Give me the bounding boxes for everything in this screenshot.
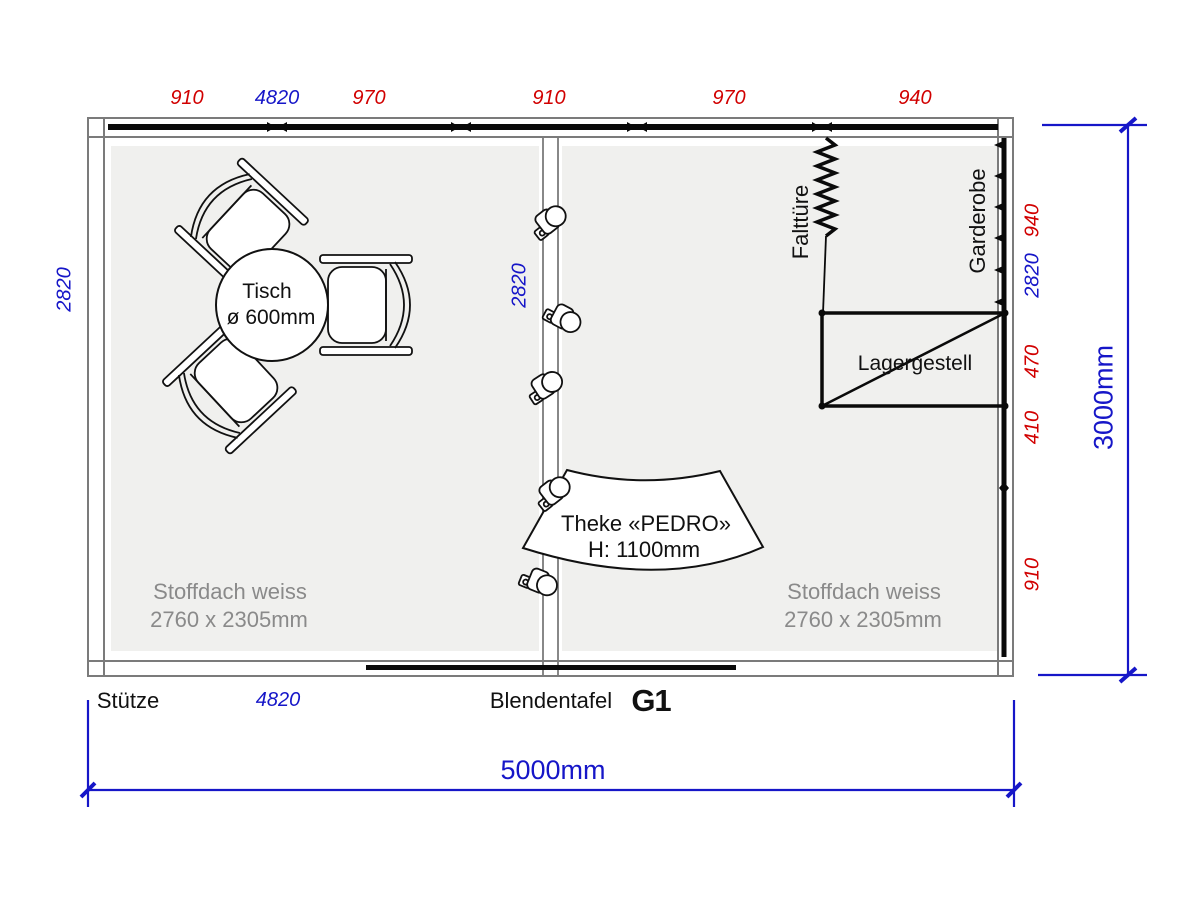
- storage-rack-label: Lagergestell: [835, 352, 995, 376]
- folding-door-label: Falttüre: [788, 142, 814, 302]
- right-roof-panel: [562, 146, 998, 651]
- dim-top-seg-4: 970: [669, 87, 789, 110]
- counter-label-1: Theke «PEDRO»: [546, 511, 746, 537]
- roof-right-label-1: Stoffdach weiss: [764, 579, 964, 605]
- roof-left-label-2: 2760 x 2305mm: [129, 607, 329, 633]
- dim-left-depth: 2820: [54, 230, 77, 350]
- dim-top-seg-3: 910: [489, 87, 609, 110]
- fascia-label: Blendentafel: [481, 688, 621, 714]
- dim-overall-width: 5000mm: [473, 755, 633, 786]
- dim-overall-depth: 3000mm: [1089, 318, 1120, 478]
- dim-top-seg-2: 970: [309, 87, 429, 110]
- table-icon: [216, 249, 328, 361]
- wardrobe-label: Garderobe: [965, 141, 991, 301]
- dim-front-inner-width: 4820: [218, 689, 338, 712]
- table-label-1: Tisch: [187, 280, 347, 304]
- dim-right-seg-3: 410: [1022, 368, 1045, 488]
- dimension-line-width: [81, 700, 1021, 807]
- table-label-2: ø 600mm: [191, 306, 351, 330]
- dim-top-seg-5: 940: [855, 87, 975, 110]
- counter-label-2: H: 1100mm: [544, 537, 744, 563]
- floor-plan-drawing: 910 4820 970 910 970 940 940 2820 470 41…: [0, 0, 1200, 900]
- panel-id-label: G1: [601, 683, 701, 719]
- fascia-board-line: [366, 665, 736, 670]
- roof-right-label-2: 2760 x 2305mm: [763, 607, 963, 633]
- back-wall-panel: [108, 122, 998, 132]
- dim-right-seg-4: 910: [1022, 515, 1045, 635]
- dim-center-depth: 2820: [509, 226, 532, 346]
- support-label: Stütze: [58, 688, 198, 714]
- roof-left-label-1: Stoffdach weiss: [130, 579, 330, 605]
- left-roof-panel: [111, 146, 539, 651]
